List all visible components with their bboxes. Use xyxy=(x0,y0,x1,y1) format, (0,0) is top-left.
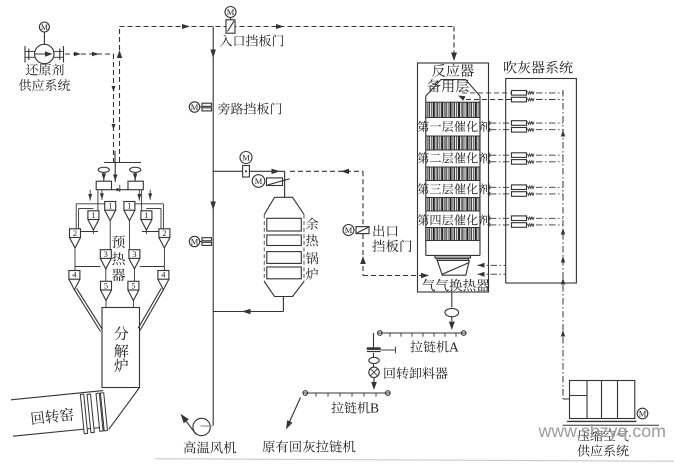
svg-text:B: B xyxy=(370,401,379,416)
svg-text:www.sbzyq.com: www.sbzyq.com xyxy=(538,421,666,441)
svg-text:5: 5 xyxy=(104,280,108,290)
svg-text:1: 1 xyxy=(91,210,95,220)
svg-text:1: 1 xyxy=(144,210,148,220)
svg-text:1: 1 xyxy=(108,201,112,211)
svg-text:M: M xyxy=(191,237,199,247)
svg-text:M: M xyxy=(345,225,353,235)
svg-text:M: M xyxy=(255,176,263,186)
svg-text:4: 4 xyxy=(161,270,166,280)
svg-text:M: M xyxy=(41,23,48,32)
svg-text:2: 2 xyxy=(73,228,77,238)
svg-text:M: M xyxy=(242,153,250,163)
svg-text:4: 4 xyxy=(72,270,77,280)
svg-text:M: M xyxy=(191,102,199,112)
svg-text:3: 3 xyxy=(132,249,136,259)
svg-text:2: 2 xyxy=(162,228,166,238)
svg-text:1: 1 xyxy=(127,201,131,211)
svg-text:M: M xyxy=(639,409,647,419)
svg-text:M: M xyxy=(227,7,235,17)
svg-text:5: 5 xyxy=(131,280,135,290)
svg-text:A: A xyxy=(449,340,459,355)
svg-text:3: 3 xyxy=(104,249,108,259)
